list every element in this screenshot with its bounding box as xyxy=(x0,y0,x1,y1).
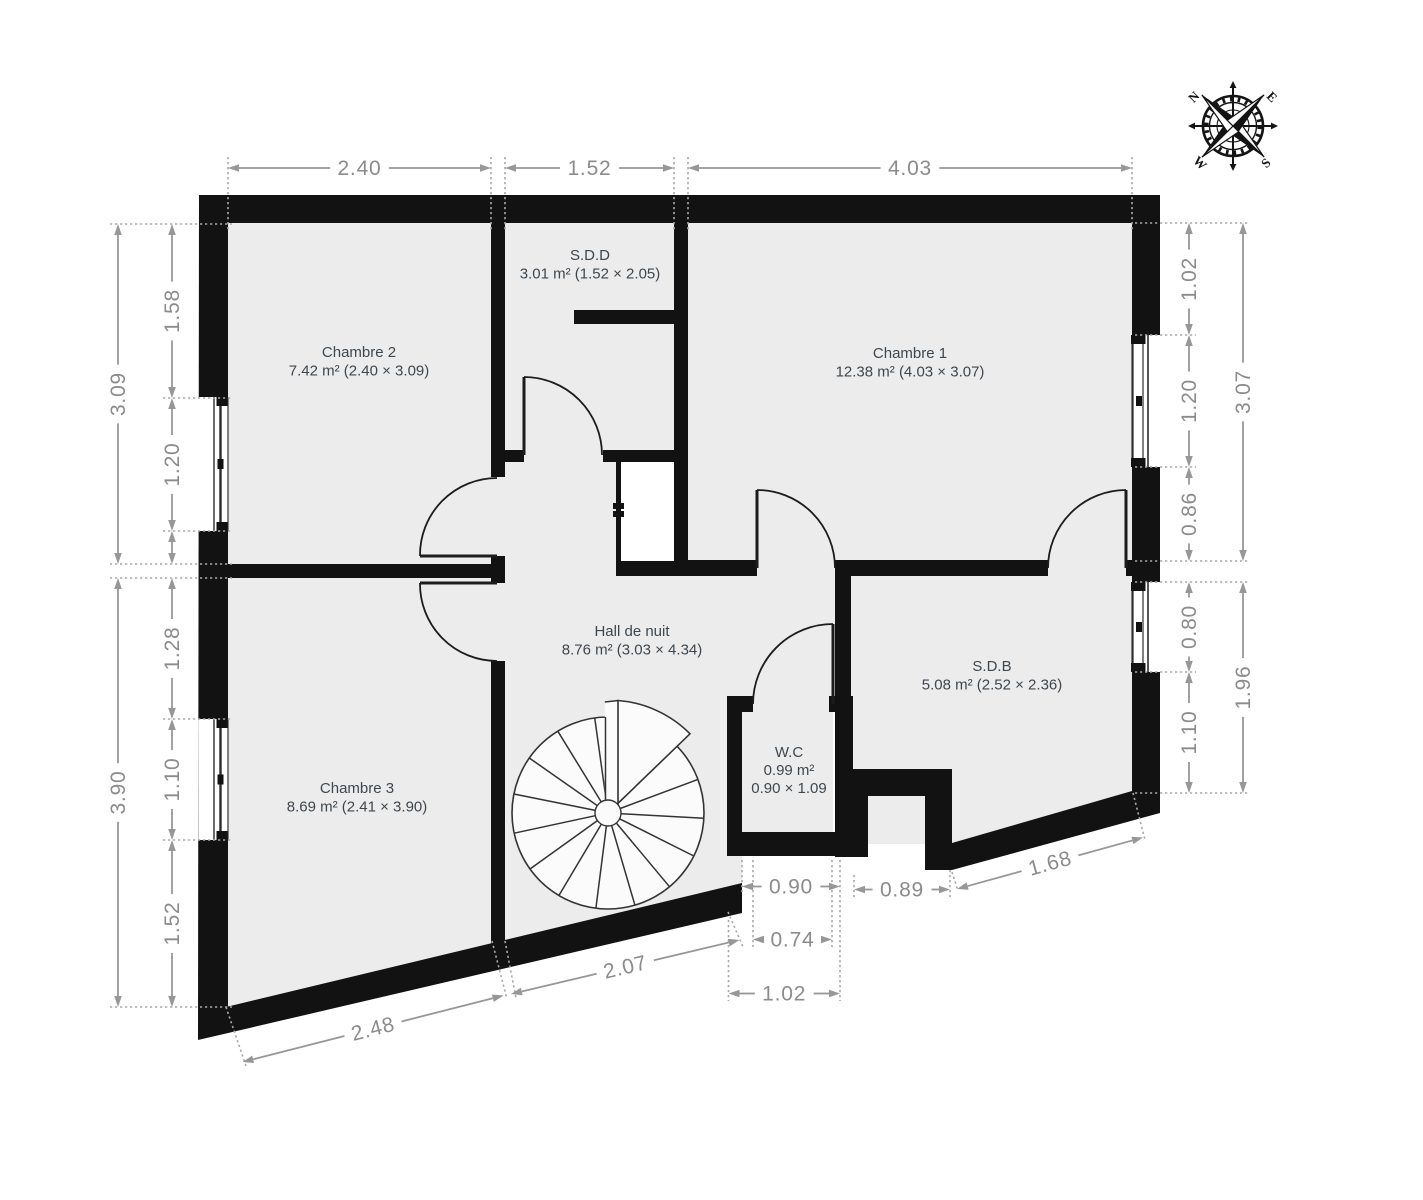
svg-text:1.02: 1.02 xyxy=(1178,257,1201,301)
svg-text:2.40: 2.40 xyxy=(337,157,381,180)
svg-text:8.69 m² (2.41 × 3.90): 8.69 m² (2.41 × 3.90) xyxy=(287,799,428,816)
svg-text:Chambre 2: Chambre 2 xyxy=(322,344,396,361)
svg-text:4.03: 4.03 xyxy=(888,157,932,180)
svg-text:3.07: 3.07 xyxy=(1232,370,1255,414)
svg-text:0.90: 0.90 xyxy=(769,876,813,899)
svg-text:1.28: 1.28 xyxy=(161,626,184,670)
svg-text:8.76 m² (3.03 × 4.34): 8.76 m² (3.03 × 4.34) xyxy=(562,642,703,659)
svg-text:0.99 m²: 0.99 m² xyxy=(764,762,815,779)
svg-text:S.D.D: S.D.D xyxy=(570,247,610,264)
svg-text:Hall de nuit: Hall de nuit xyxy=(594,623,670,640)
svg-text:1.96: 1.96 xyxy=(1232,665,1255,709)
svg-text:1.10: 1.10 xyxy=(1178,710,1201,754)
svg-text:3.09: 3.09 xyxy=(107,372,130,416)
svg-text:1.52: 1.52 xyxy=(567,157,611,180)
svg-text:Chambre 1: Chambre 1 xyxy=(873,345,947,362)
svg-text:0.90 × 1.09: 0.90 × 1.09 xyxy=(751,780,826,797)
svg-text:0.74: 0.74 xyxy=(770,929,814,952)
svg-text:1.20: 1.20 xyxy=(1178,379,1201,423)
svg-text:7.42 m² (2.40 × 3.09): 7.42 m² (2.40 × 3.09) xyxy=(289,363,430,380)
svg-text:S.D.B: S.D.B xyxy=(972,658,1011,675)
svg-text:0.86: 0.86 xyxy=(1178,492,1201,536)
svg-text:1.52: 1.52 xyxy=(161,901,184,945)
svg-text:W.C: W.C xyxy=(775,744,803,761)
svg-text:3.01 m² (1.52 × 2.05): 3.01 m² (1.52 × 2.05) xyxy=(520,266,661,283)
svg-text:1.02: 1.02 xyxy=(762,983,806,1006)
svg-text:Chambre 3: Chambre 3 xyxy=(320,780,394,797)
svg-text:12.38 m² (4.03 × 3.07): 12.38 m² (4.03 × 3.07) xyxy=(836,364,985,381)
svg-text:3.90: 3.90 xyxy=(107,770,130,814)
svg-text:5.08 m² (2.52 × 2.36): 5.08 m² (2.52 × 2.36) xyxy=(922,677,1063,694)
svg-text:0.80: 0.80 xyxy=(1178,605,1201,649)
svg-text:1.58: 1.58 xyxy=(161,289,184,333)
svg-text:0.89: 0.89 xyxy=(880,879,924,902)
svg-text:1.10: 1.10 xyxy=(161,757,184,801)
svg-text:1.20: 1.20 xyxy=(161,442,184,486)
